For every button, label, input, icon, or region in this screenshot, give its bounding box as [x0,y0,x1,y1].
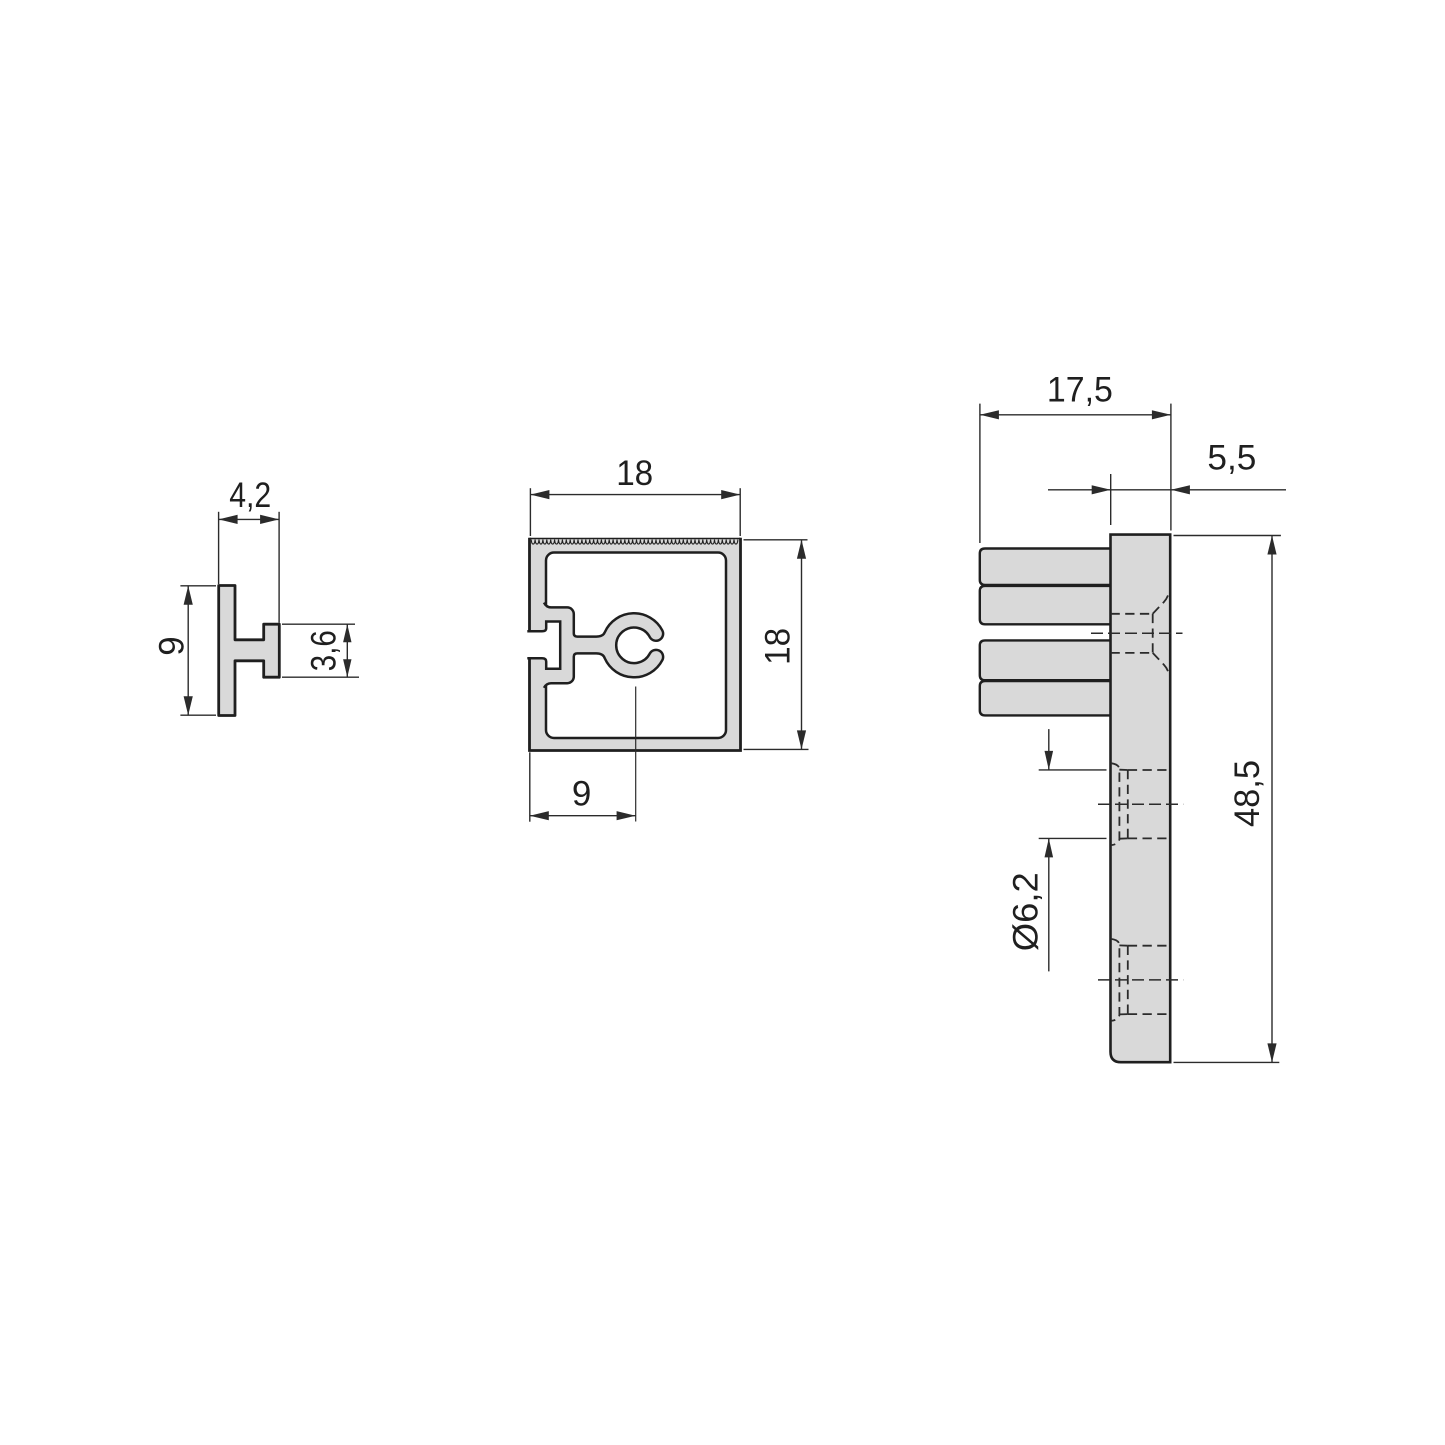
svg-text:Ø6,2: Ø6,2 [1007,872,1046,951]
svg-text:5,5: 5,5 [1207,439,1256,478]
svg-text:9: 9 [572,775,591,814]
svg-text:3,6: 3,6 [305,630,344,671]
svg-text:17,5: 17,5 [1047,371,1113,410]
svg-text:48,5: 48,5 [1228,760,1267,827]
svg-text:4,2: 4,2 [229,476,271,515]
svg-text:18: 18 [616,454,653,493]
svg-text:18: 18 [758,628,797,665]
svg-text:9: 9 [152,636,191,655]
